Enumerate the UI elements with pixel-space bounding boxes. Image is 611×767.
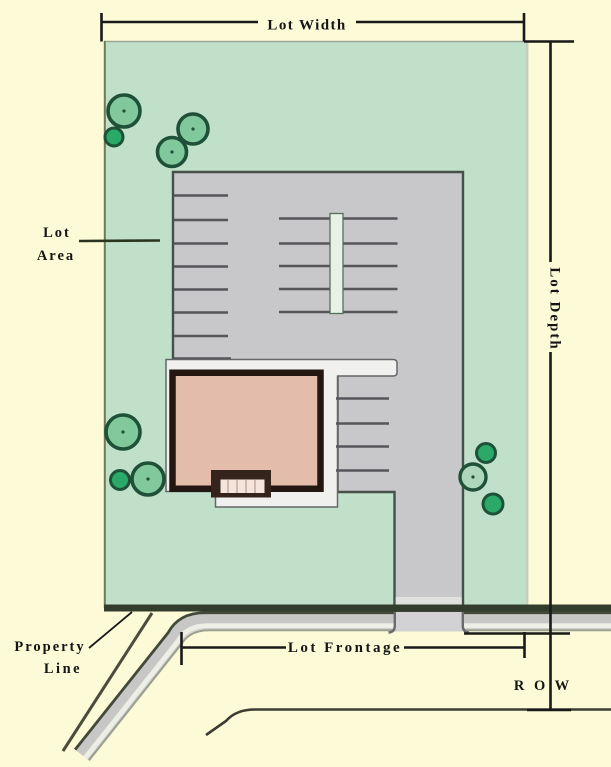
svg-text:Line: Line <box>44 661 82 677</box>
svg-text:Lot Depth: Lot Depth <box>547 267 563 350</box>
svg-text:Property: Property <box>14 639 85 655</box>
svg-text:Area: Area <box>37 248 75 264</box>
svg-text:Lot Width: Lot Width <box>267 18 346 34</box>
svg-text:R O W: R O W <box>514 678 572 694</box>
svg-text:Lot: Lot <box>43 225 71 241</box>
svg-text:Lot Frontage: Lot Frontage <box>288 640 402 656</box>
